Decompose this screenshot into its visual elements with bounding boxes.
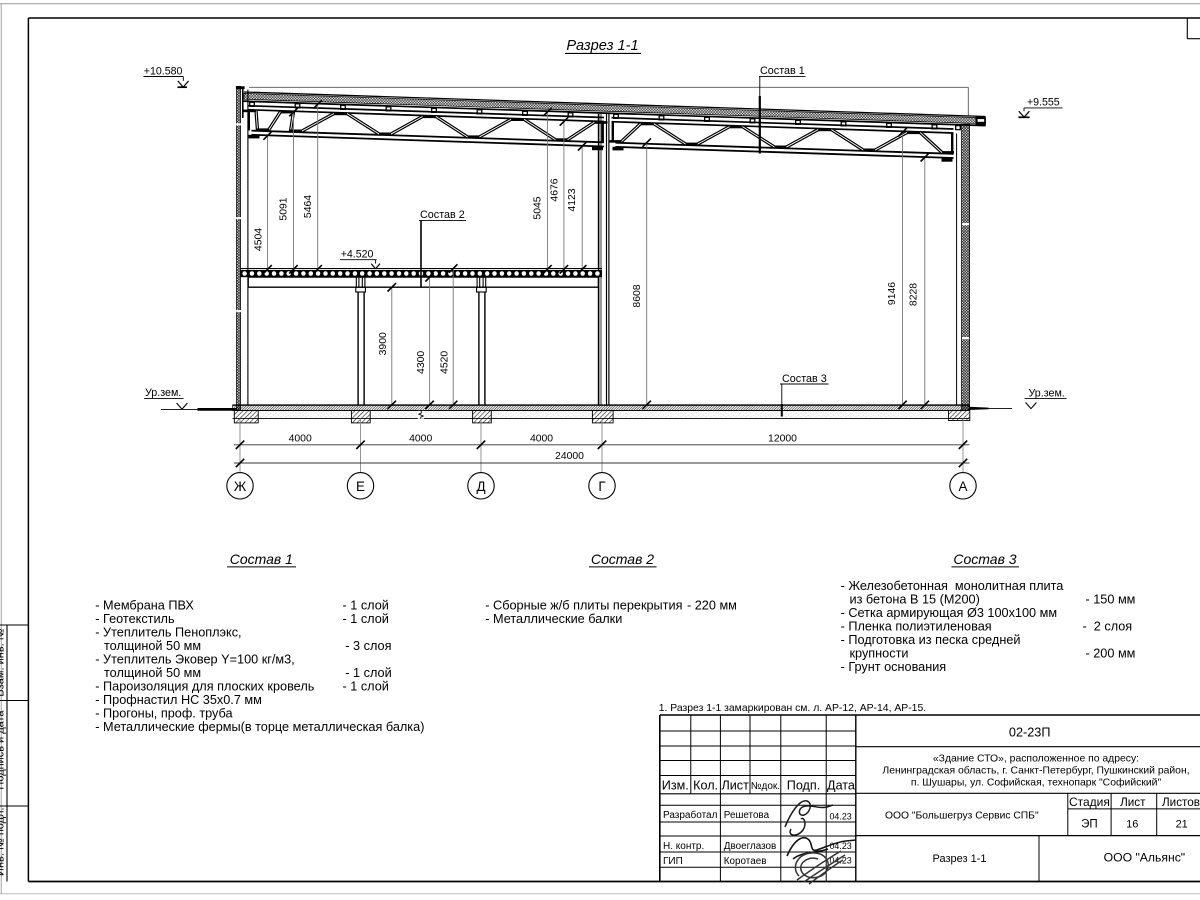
svg-text:Разрез 1-1: Разрез 1-1 [566, 38, 638, 54]
svg-text:1. Разрез 1-1 замаркирован см.: 1. Разрез 1-1 замаркирован см. л. АР-12,… [659, 703, 926, 714]
svg-text:Состав 1: Состав 1 [760, 65, 805, 77]
svg-text:4504: 4504 [254, 228, 265, 251]
svg-text:Разработал: Разработал [663, 809, 718, 821]
svg-text:24000: 24000 [555, 451, 584, 462]
svg-text:ГИП: ГИП [663, 856, 683, 867]
svg-text:Изм.: Изм. [662, 779, 689, 793]
svg-text:п. Шушары, ул. Софийская, техн: п. Шушары, ул. Софийская, технопарк "Соф… [911, 777, 1162, 789]
svg-text:Коротаев: Коротаев [724, 856, 767, 867]
svg-text:Листов: Листов [1162, 796, 1200, 809]
svg-text:- Металлические фермы(в торце: - Металлические фермы(в торце металличес… [95, 720, 424, 734]
svg-text:Лист: Лист [1120, 796, 1146, 809]
svg-text:Дата: Дата [827, 779, 855, 793]
svg-text:Состав 1: Состав 1 [230, 551, 293, 567]
svg-text:4520: 4520 [439, 351, 450, 374]
svg-text:Лист: Лист [722, 779, 750, 793]
svg-text:04.23: 04.23 [830, 812, 852, 822]
svg-text:- 3 слоя: - 3 слоя [345, 639, 391, 653]
svg-text:- Сетка армирующая Ø3 100х100: - Сетка армирующая Ø3 100х100 мм [841, 606, 1057, 620]
svg-text:Взам. инв. №: Взам. инв. № [0, 628, 6, 696]
svg-text:4676: 4676 [550, 178, 561, 201]
svg-text:- Мембрана ПВХ: - Мембрана ПВХ [95, 599, 194, 613]
svg-text:- 1 слой: - 1 слой [343, 612, 389, 626]
svg-text:Состав 3: Состав 3 [953, 551, 1016, 567]
svg-text:4000: 4000 [409, 434, 432, 445]
svg-text:- Железобетонная монолитная п: - Железобетонная монолитная плита [841, 579, 1065, 593]
svg-text:5045: 5045 [533, 196, 544, 219]
svg-text:4300: 4300 [416, 351, 427, 374]
svg-text:толщиной 50 мм: толщиной 50 мм [104, 666, 201, 680]
svg-text:5464: 5464 [303, 195, 314, 218]
svg-text:Ж: Ж [234, 479, 247, 494]
svg-text:8608: 8608 [632, 284, 643, 307]
svg-text:- Профнастил НС 35х0.7 мм: - Профнастил НС 35х0.7 мм [95, 693, 262, 707]
svg-text:Кол.: Кол. [693, 779, 718, 793]
svg-text:- 1 слой: - 1 слой [343, 680, 389, 694]
svg-text:Инв. № подл.: Инв. № подл. [0, 807, 6, 876]
svg-text:Состав 2: Состав 2 [591, 551, 654, 567]
svg-text:Н. контр.: Н. контр. [663, 841, 704, 852]
svg-text:Д: Д [476, 479, 485, 494]
svg-text:- Пленка полиэтиленовая: - Пленка полиэтиленовая [841, 620, 992, 634]
svg-text:- Утеплитель Эковер Y=100 кг/м: - Утеплитель Эковер Y=100 кг/м3, [95, 653, 294, 667]
svg-text:- Прогоны, проф. труба: - Прогоны, проф. труба [95, 707, 233, 721]
svg-text:Стадия: Стадия [1069, 795, 1110, 809]
svg-text:- Утеплитель Пеноплэкс,: - Утеплитель Пеноплэкс, [95, 626, 241, 640]
svg-text:4123: 4123 [567, 188, 578, 211]
svg-text:- Грунт основания: - Грунт основания [841, 660, 947, 674]
svg-text:Разрез 1-1: Разрез 1-1 [932, 853, 986, 865]
svg-text:- 2 слоя: - 2 слоя [1083, 620, 1133, 634]
svg-text:№док.: №док. [751, 781, 780, 792]
svg-text:- Металлические балки: - Металлические балки [485, 612, 622, 626]
svg-text:8228: 8228 [908, 283, 919, 306]
svg-text:+4.520: +4.520 [341, 249, 374, 261]
svg-text:из бетона В 15 (М200): из бетона В 15 (М200) [850, 593, 980, 607]
svg-text:- Подготовка из песка средней: - Подготовка из песка средней [841, 633, 1021, 647]
svg-text:ООО "Альянс": ООО "Альянс" [1104, 851, 1186, 865]
svg-text:Состав 3: Состав 3 [782, 373, 827, 385]
svg-text:ЭП: ЭП [1081, 819, 1098, 831]
svg-text:- 1 слой: - 1 слой [343, 599, 389, 613]
svg-text:- Сборные ж/б плиты перекрытия: - Сборные ж/б плиты перекрытия [485, 599, 682, 613]
svg-text:4000: 4000 [289, 434, 312, 445]
svg-text:Е: Е [356, 479, 365, 494]
svg-text:02-23П: 02-23П [1009, 725, 1051, 739]
svg-text:9146: 9146 [887, 282, 898, 305]
svg-text:Ур.зем.: Ур.зем. [1029, 387, 1065, 399]
svg-text:- 200 мм: - 200 мм [1086, 647, 1136, 661]
svg-text:21: 21 [1176, 819, 1188, 831]
svg-text:Ур.зем.: Ур.зем. [145, 387, 181, 399]
svg-text:ООО "Большегруз Сервис СПБ": ООО "Большегруз Сервис СПБ" [885, 811, 1039, 822]
svg-text:Решетова: Решетова [724, 810, 770, 821]
svg-text:толщиной 50 мм: толщиной 50 мм [104, 639, 201, 653]
svg-text:Подпись и дата: Подпись и дата [0, 710, 6, 790]
svg-text:А: А [959, 479, 968, 494]
svg-text:12000: 12000 [768, 434, 797, 445]
svg-text:5091: 5091 [279, 197, 290, 220]
svg-text:Двоеглазов: Двоеглазов [724, 841, 777, 852]
svg-text:3900: 3900 [378, 332, 389, 355]
svg-text:крупности: крупности [850, 647, 909, 661]
svg-text:16: 16 [1126, 819, 1138, 831]
svg-text:- Геотекстиль: - Геотекстиль [95, 612, 175, 626]
svg-text:Состав 2: Состав 2 [420, 209, 465, 221]
svg-text:4000: 4000 [530, 434, 553, 445]
svg-text:- 150 мм: - 150 мм [1086, 593, 1136, 607]
svg-text:+10.580: +10.580 [144, 65, 183, 77]
svg-text:+9.555: +9.555 [1027, 97, 1060, 109]
svg-text:- 220 мм: - 220 мм [687, 599, 737, 613]
svg-text:- 1 слой: - 1 слой [345, 666, 391, 680]
svg-text:Ленинградская область, г. Санк: Ленинградская область, г. Санкт-Петербур… [882, 764, 1189, 776]
svg-text:«Здание СТО», расположенное по: «Здание СТО», расположенное по адресу: [933, 753, 1139, 764]
svg-text:Подп.: Подп. [787, 779, 820, 793]
svg-text:Г: Г [598, 479, 605, 494]
svg-text:- Пароизоляция для плоских кро: - Пароизоляция для плоских кровель [95, 680, 314, 694]
